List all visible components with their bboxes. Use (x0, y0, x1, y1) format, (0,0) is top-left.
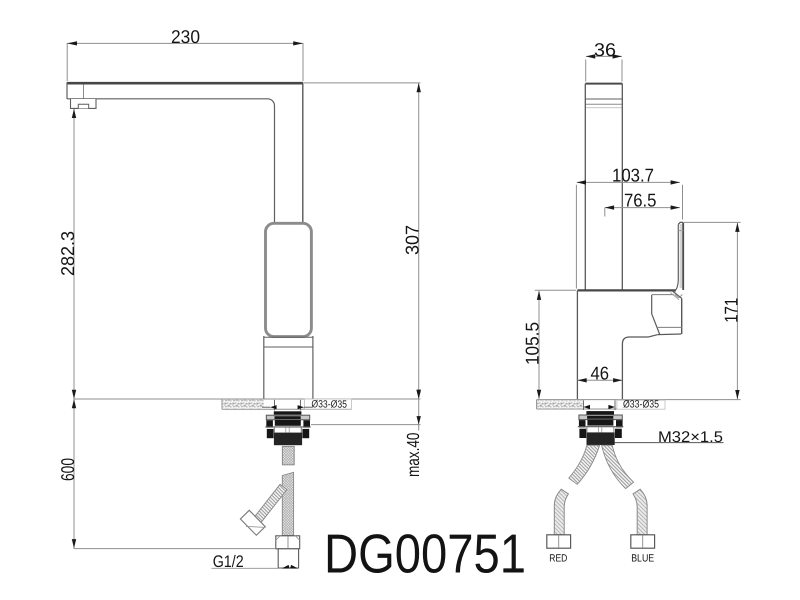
svg-text:171: 171 (720, 298, 741, 323)
svg-text:46: 46 (591, 362, 610, 383)
svg-text:G1/2: G1/2 (213, 552, 244, 571)
svg-text:105.5: 105.5 (521, 322, 542, 365)
svg-text:103.7: 103.7 (612, 165, 654, 186)
svg-text:M32×1.5: M32×1.5 (658, 429, 723, 446)
svg-text:36: 36 (594, 39, 616, 60)
svg-text:307: 307 (401, 225, 422, 255)
svg-text:76.5: 76.5 (624, 190, 657, 211)
svg-text:600: 600 (57, 458, 78, 481)
svg-text:RED: RED (549, 552, 567, 564)
svg-text:Ø33-Ø35: Ø33-Ø35 (623, 399, 659, 411)
svg-text:Ø33-Ø35: Ø33-Ø35 (311, 398, 347, 410)
svg-text:max.40: max.40 (403, 432, 423, 477)
svg-text:230: 230 (171, 26, 200, 47)
svg-text:DG00751: DG00751 (324, 523, 526, 585)
svg-text:282.3: 282.3 (57, 231, 78, 276)
svg-text:BLUE: BLUE (631, 552, 654, 564)
